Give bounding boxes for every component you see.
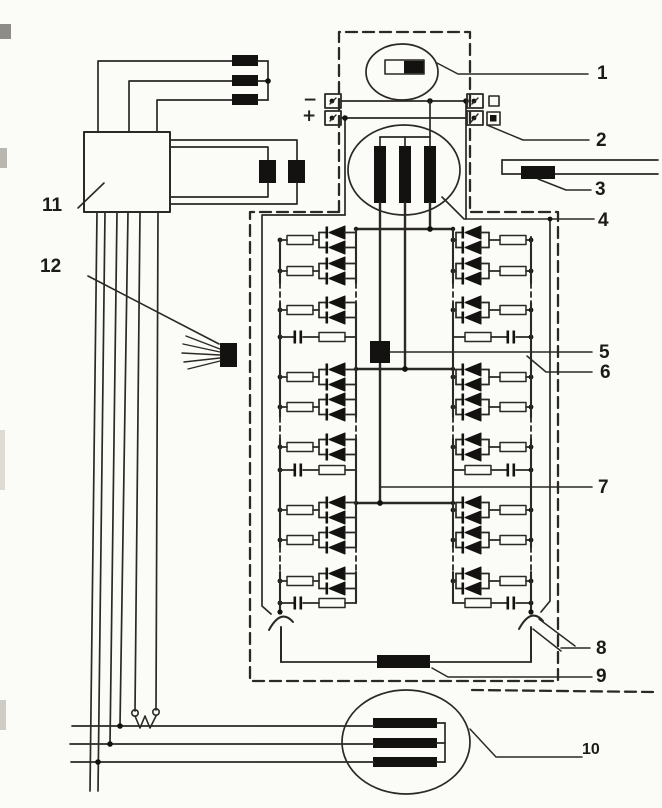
callout-2: 2 (596, 131, 607, 150)
callout-10: 10 (582, 742, 600, 758)
control-box (84, 55, 305, 212)
callout-7: 7 (598, 478, 609, 497)
brush-left (269, 609, 293, 662)
negative-return-wire (541, 217, 552, 612)
schematic-page: − + 1 2 3 4 5 6 7 8 9 10 11 12 (0, 0, 662, 808)
callout-5: 5 (599, 343, 610, 362)
callout-3: 3 (595, 180, 606, 199)
callout-2-leader (487, 125, 589, 140)
charge-indicator-lamp (366, 44, 438, 100)
callout-12: 12 (40, 257, 61, 276)
sign-plus: + (302, 108, 316, 125)
brush-right (519, 609, 543, 662)
scan-artifacts (0, 24, 11, 730)
callout-8: 8 (596, 639, 607, 658)
harness-wires (70, 212, 374, 791)
callout-6: 6 (600, 363, 611, 382)
rotor-field-lead (281, 655, 531, 668)
callout-6-leader (527, 356, 592, 372)
suppressor-block (370, 341, 390, 363)
ballast-resistor-zigzag (132, 709, 159, 728)
field-winding-bar (377, 655, 430, 668)
callout-4: 4 (598, 211, 609, 230)
spade-connectors (487, 96, 500, 125)
callout-12-leader (88, 276, 219, 344)
callout-1-leader (437, 63, 588, 74)
callout-1: 1 (597, 64, 608, 83)
wiring-diagram-canvas (0, 0, 662, 808)
rotor-coils (342, 690, 470, 794)
callout-3-leader (538, 179, 591, 190)
connector-link (502, 160, 658, 179)
callout-10-leader (470, 729, 582, 757)
callout-8-leader (533, 619, 590, 651)
callout-11: 11 (42, 196, 62, 215)
carbon-brush (182, 336, 237, 369)
callout-9-leader (432, 668, 592, 677)
callout-9: 9 (596, 667, 607, 686)
callout-4-leader (442, 197, 594, 219)
